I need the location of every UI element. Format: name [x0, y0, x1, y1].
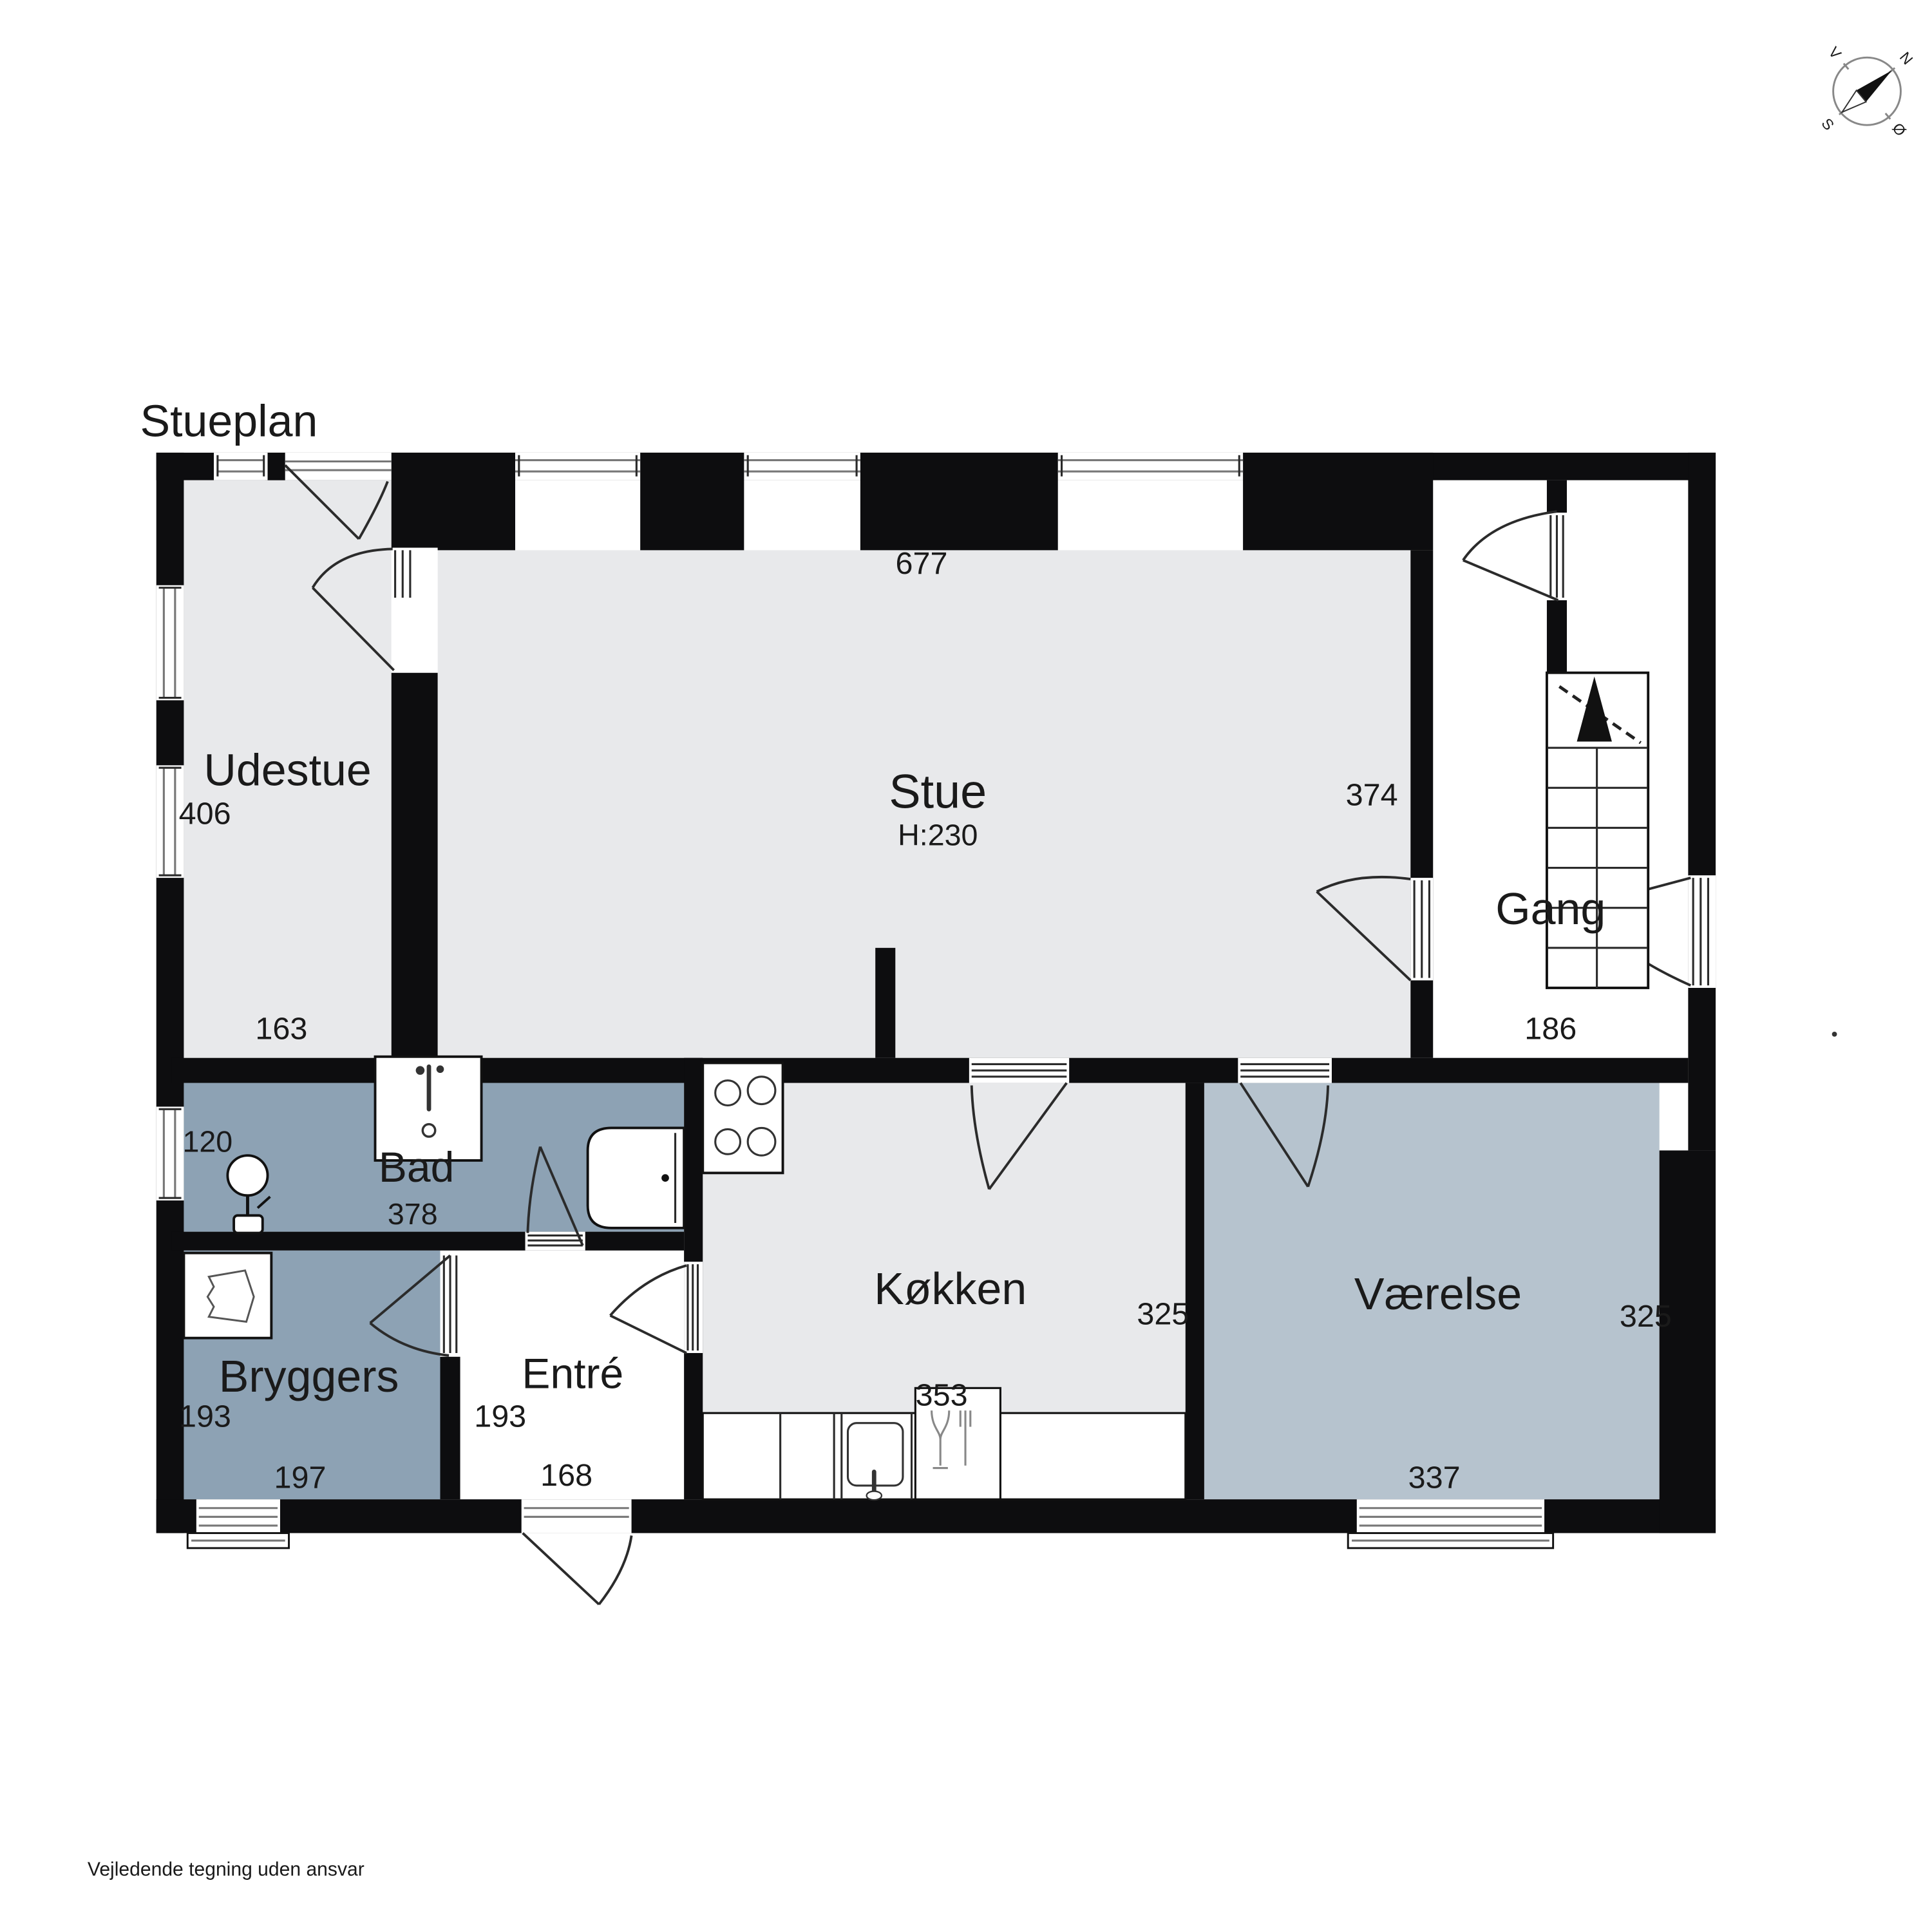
- wall-bryggers-entre: [440, 1357, 460, 1499]
- wall-right-upper: [1688, 453, 1716, 1150]
- gang-wall-notch: [1660, 1083, 1689, 1151]
- wall-bad-bryggers: [171, 1232, 684, 1251]
- laundry-sink-icon: [184, 1253, 271, 1338]
- dim-bryggers-bottom: 197: [274, 1461, 327, 1495]
- compass-label-east: Ø: [1889, 120, 1909, 140]
- room-label-gang: Gang: [1495, 884, 1605, 934]
- dim-entre-left: 193: [474, 1399, 526, 1434]
- dim-gang-width: 186: [1524, 1012, 1577, 1046]
- bathtub-icon: [588, 1128, 685, 1227]
- pier-udestue: [265, 453, 285, 480]
- staircase: [1547, 673, 1648, 988]
- dim-udestue-area: 406: [179, 797, 231, 831]
- dim-udestue-width: 163: [255, 1012, 307, 1046]
- dim-entre-bottom: 168: [540, 1458, 592, 1493]
- dim-stue-ceiling: H:230: [898, 819, 978, 852]
- disclaimer-text: Vejledende tegning uden ansvar: [88, 1859, 365, 1880]
- wall-stue-stub: [875, 948, 895, 1058]
- compass-label-west: V: [1825, 44, 1844, 62]
- room-label-bad: Bad: [379, 1143, 454, 1191]
- wall-udestue-stue-lower: [392, 673, 438, 1058]
- room-label-bryggers: Bryggers: [219, 1351, 399, 1401]
- dim-stue-right: 374: [1346, 777, 1398, 812]
- print-dot: [1832, 1032, 1837, 1037]
- page-title: Stueplan: [140, 396, 317, 446]
- wall-udestue-stue-top: [392, 453, 515, 550]
- wall-stue-gang: [1410, 550, 1433, 1057]
- room-label-vaerelse: Værelse: [1354, 1269, 1522, 1319]
- dim-stue-top: 677: [896, 546, 948, 581]
- pier-stue-1: [640, 453, 744, 550]
- room-label-koekken: Køkken: [874, 1264, 1027, 1314]
- compass-label-south: S: [1818, 115, 1837, 133]
- room-label-stue: Stue: [889, 764, 987, 818]
- wall-nook-stub-upper: [1547, 480, 1567, 513]
- dim-bad-window: 120: [182, 1124, 232, 1158]
- wall-nook-stub-lower: [1547, 600, 1567, 673]
- dim-bryggers-left: 193: [179, 1399, 231, 1434]
- dim-koekken-right: 325: [1137, 1296, 1189, 1331]
- compass-rose-icon: N Ø S V: [1786, 11, 1932, 173]
- room-label-udestue: Udestue: [204, 744, 371, 795]
- pier-stue-2: [860, 453, 1058, 550]
- dim-koekken-bottom: 353: [916, 1378, 968, 1413]
- dim-bad-width: 378: [388, 1197, 438, 1231]
- stove-icon: [703, 1063, 782, 1173]
- room-label-entre: Entré: [522, 1349, 623, 1397]
- pier-stue-3: [1243, 453, 1433, 550]
- floor-plan: N Ø S V Stueplan Udestue 406 163 677 Stu…: [0, 0, 1932, 1932]
- dim-vaerelse-bottom: 337: [1408, 1461, 1461, 1495]
- dim-vaerelse-right: 325: [1620, 1299, 1672, 1334]
- wall-right-lower: [1660, 1150, 1716, 1533]
- compass-label-north: N: [1897, 49, 1917, 68]
- wall-koekken-vaerelse: [1186, 1083, 1204, 1500]
